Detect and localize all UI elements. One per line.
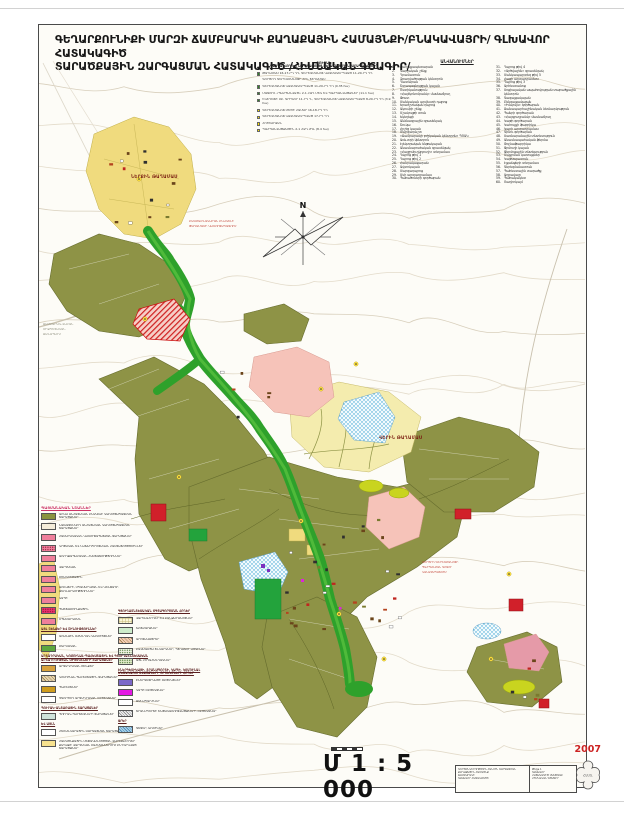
legend-row: ՄՇԱԿՈՒԹԱՅԻՆ [41,576,148,583]
stamp-seal-icon: ՀԱՍՏ. [570,758,606,792]
list-item-label: Ռադիոկայմ [504,181,586,185]
list-item-label: ՄԱՏՈՒՌ «ՊԱՀՊԱՆՎԱԾ» 2-1 ՀՁԴ ՄԵԿ ԵՎ ՊԱՀՊԱՆ… [262,92,373,96]
legend-swatch [41,607,56,614]
map-label-lower-quarter: ՆԵՐՔԻՆ ԹԱՂԱՄԱՍ [131,174,178,179]
legend-swatch [41,555,56,562]
list-item-marker [257,109,260,112]
list-item-number: 30. [392,177,400,181]
legend-row: ԿԱՊԻ ՕԲՅԵԿՏՆԵՐ [118,689,223,696]
legend-swatch [41,740,56,747]
legend-label: ԱՌՈՂՋԱՊԱՀԱԿԱՆ ՀԱՍՏԱՏՈՒԹՅՈՒՆՆԵՐ [59,555,121,559]
legend-label: ՏՐԱՆՍՊՈՐՏԻ ԵՆԹԱԿԱՌՈՒՑՎԱԾՔՆԵՐԻ ՕԲՅԵԿՏՆԵՐ [136,710,216,714]
legend-label: ՊԱՀԵՍՏՆԵՐ [59,686,78,690]
map-label-upper-quarter: ՎԵՐԻՆ ԹԱՂԱՄԱՍ [379,435,423,440]
legend-label: ԱՌԱՆՁԻՆ ՕԺԱՆԴԱԿ ԿԱՌՈՒՅՑՆԵՐ [59,634,112,638]
legend-row: ՃԱՆԱՊԱՐՀՆԵՐ [118,699,223,706]
legend-swatch [118,637,133,644]
legend-swatch [118,627,133,634]
legend-swatch [118,710,133,717]
list-item-label: ՊԱՀՊԱՆՎԱԾՔԱՅԻՆ 2-1 ՀՁԴ ԺԴԼ (8.4 հա) [262,128,328,132]
legend-middle-column: ԳՅՈՒՂԱՏՆՏԵՍԱԿԱՆ ՕԳՏԱԳՈՐԾՄԱՆ ՀՈՂԵՐՎԱՐԵԼԱՀ… [118,607,223,737]
names-list-header: ԱՆՎԱՆՈՒՄՆԵՐ [402,59,512,64]
legend-label: ԱՌԵՎՏՐԻ, ՍՊԱՍԱՐԿՄԱՆ ԵՎ ԿԵՆՑԱՂԻ ՁԵՌՆԱՐԿՈՒ… [59,586,148,593]
list-item: ԳԵՐԵԶՄԱՆՈՑ ՄԵԾԻ ՀԱՄԱՐ 16-18-ՐԴ ԴԴ [257,109,391,113]
title-block: ԳՈՐԾԸՆԿԵՐՈՒԹՅՈՒՆ ՀԱՆՈՒՆ ԶԱՐԳԱՑՄԱՆ ՔԱՂԱՔԱ… [455,765,577,793]
legend-swatch [118,699,133,706]
title-block-line: ՀԻՄՆԱԿԱՆ ԳԾԱԳԻՐ [532,777,574,780]
legend-swatch [41,729,56,736]
legend-label: ՍՊԱՍԱՐԿՄԱՆ [59,618,81,622]
title-block-left: ԳՈՐԾԸՆԿԵՐՈՒԹՅՈՒՆ ՀԱՆՈՒՆ ԶԱՐԳԱՑՄԱՆ ՔԱՂԱՔԱ… [456,766,530,792]
list-item-label: ԳԵՐԵԶՄԱՆՈՑ ԿԱԶՄԱԿԵՐՊՎԱԾ 17-ՐԴ ԴԴ [262,115,328,119]
compass-north-label: N [300,201,307,210]
legend-label: ԱՐՏԱԴՐԱԿԱՆ ՇԵՆՔԵՐ [59,665,94,669]
legend-label: ԱՌԿԱ ԱՆՀԱՏԱԿԱՆ ԲՆԱԿԵԼԻ ԿԱՌՈՒՑԱՊԱՏՄԱՆ ՏԱՐ… [59,513,148,520]
list-item-label: ԵԿԵՂԵՑԻ ՍԲ. ԳՐԻԳՈՐ 11-ՐԴ Դ., ԳԵՐԵԶՄԱՆՈՑ … [262,98,391,106]
legend-label: ՀԱՄԱՅՆՔԱՅԻՆ ՍԵՓԱԿԱՆՈՒԹՅԱՆ ՎԱՐԵԼԱՀՈՂԵՐ ՔԱ… [59,740,148,751]
legend-section-header: ԷՆԵՐԳԵՏԻԿԱՅԻ, ՏՐԱՆՍՊՈՐՏԻ, ԿԱՊԻ, ԿՈՄՈՒՆԱԼ… [118,669,223,677]
list-item-marker [257,99,260,102]
list-item-marker [257,85,260,88]
legend-section-header: ՊԱՅՄԱՆԱԿԱՆ ՆՇԱՆՆԵՐ [41,506,148,510]
legend-swatch [41,713,56,720]
title-block-line: ԳԼԽԱՎՈՐ ՀԱՏԱԿԱԳԻԾ [458,777,527,780]
list-item: ՊԱՀՊԱՆՎԱԾՔԱՅԻՆ 2-1 ՀՁԴ ԺԴԼ (8.4 հա) [257,128,391,132]
legend-row: ՎԱՐՉԱԿԱՆ [41,565,148,572]
legend-label: ԽՈՏՀԱՐՔՆԵՐ [136,627,158,631]
legend-label: ԿԱՊԻ ՕԲՅԵԿՏՆԵՐ [136,689,165,693]
map-label-road-3: ՃԱՆԱՊԱՐՀ [43,332,61,336]
legend-swatch [41,513,56,520]
legend-row: ԱՅԼ ՀՈՂԱՀԱՆԴԱԿՆԵՐ [118,658,223,665]
legend-swatch [41,686,56,693]
legend-swatch [118,648,133,655]
legend-label: ՄՇԱԿՈՒԹԱՅԻՆ [59,576,82,580]
year-label: 2007 [539,744,601,755]
legend-swatch [41,565,56,572]
map-label-cemetery-3: ԿԱՆԱՉԱՊԱՏՈՒՄ [422,570,447,574]
legend-swatch [118,658,133,665]
legend-row: ԱՌՈՂՋԱՊԱՀԱԿԱՆ ՀԱՍՏԱՏՈՒԹՅՈՒՆՆԵՐ [41,555,148,562]
names-column-2: 31.Դպրոց թիվ 432.«Արծվաշեն» գրասենյակ33.… [496,66,586,185]
names-column-1: 1.Քաղաքապետարան2.Վարչական շենք3.Դրամատու… [392,66,496,185]
legend-row: ՀԱՄԱՅՆՔԱՅԻՆ ՍԵՓԱԿԱՆՈՒԹՅԱՆ ՎԱՐԵԼԱՀՈՂԵՐ ՔԱ… [41,740,148,751]
legend-row: ԱՌԿԱ ԱՆՀԱՏԱԿԱՆ ԲՆԱԿԵԼԻ ԿԱՌՈՒՑԱՊԱՏՄԱՆ ՏԱՐ… [41,513,148,520]
legend-row: ԱՐՈՏԱՎԱՅՐԵՐ [118,637,223,644]
legend-row: ԲԱԶՄԱՄՅԱ ՏՆԿԱՐԿՆԵՐ, ՊՏՂԱՏՈՒ ԱՅԳԻՆԵՐ [118,648,223,655]
legend-label: ՎԱՐՉԱԿԱՆ [59,565,76,569]
legend-label: ՎԱՐԵԼԱՀՈՂԵՐ ԵՎ ԲԱՆՋԱՐԱՆՈՑՆԵՐ [136,617,193,621]
legend-row: ՎԱՐԵԼԱՀՈՂԵՐ ԵՎ ԲԱՆՋԱՐԱՆՈՑՆԵՐ [118,617,223,624]
compass-icon: N [263,201,343,265]
list-item: ՀՈՒՇԱՐՁԱՆ [257,122,391,126]
legend-label: ՆԱԽԱՏԵՍՎՈՂ ԱՆՀԱՏԱԿԱՆ ԿԱՌՈՒՑԱՊԱՏՄԱՆ ՏԱՐԱԾ… [59,523,148,530]
legend-row: ԱՌԵՎՏՐԻ, ՍՊԱՍԱՐԿՄԱՆ ԵՎ ԿԵՆՑԱՂԻ ՁԵՌՆԱՐԿՈՒ… [41,586,148,593]
legend-swatch [118,726,133,733]
legend-row: ՀԱՍԱՐԱԿԱԿԱՆ ԿԱՌՈՒՑԱՊԱՏՄԱՆ ՏԱՐԱԾՔՆԵՐ [41,534,148,541]
list-item-label: Պահածոների գործարան [400,177,496,181]
map-label-district-2: ԹԱՂԱՄԱՍԻ ԿԱՌՈՒՑԱՊԱՏՈՒՄ [189,224,237,228]
legend-swatch [41,576,56,583]
protected-list-subtitle: ՊԱՀՊԱՆՎՈՂ ԵՎ ՆՈՐԱԿԱՌՈՒՅՑ ՏԵՂԱՄԱՍԵՐԻ ՆԿԱՐ… [257,65,391,69]
list-item-marker [257,72,260,75]
page-bottom-rule [0,801,624,802]
legend-label: ԿԱՊԻ [59,597,68,601]
scale-block: Մ 1 : 5 000 [323,747,453,803]
legend-label: ՀԵՌԱՆԿԱՐԱՅԻՆ ԶԱՐԳԱՑՄԱՆ ՏԱՐԱԾՔ [59,729,119,733]
legend-swatch [41,534,56,541]
legend-label: ԲԱԶՄԱՄՅԱ ՏՆԿԱՐԿՆԵՐ, ՊՏՂԱՏՈՒ ԱՅԳԻՆԵՐ [136,648,205,652]
legend-row: ԷՆԵՐԳԵՏԻԿԱՅԻ ՕԲՅԵԿՏՆԵՐ [118,679,223,686]
legend-label: ԱՅԼ ՀՈՂԱՀԱՆԴԱԿՆԵՐ [136,658,170,662]
list-item: ԳԵՐԵԶՄԱՆՈՑ ԿԱԶՄԱԿԵՐՊՎԱԾ 17-ՐԴ ԴԴ [257,115,391,119]
list-item: 60.Ռադիոկայմ [496,181,586,185]
map-label-cemetery-1: ԳՈՐԾՈՂ ԳԵՐԵԶՄԱՆՈՑԻ [422,560,458,564]
stamp-seal-text: ՀԱՍՏ. [583,774,593,778]
legend-swatch [41,523,56,530]
list-item-label: ԳԵՐԵԶՄԱՆՈՑ ԿԱԶՄԱԿԵՐՊՎԱԾ 11-20-ՐԴ ԴԴ (0.3… [262,85,349,89]
map-label-district-1: ԲԱԶՄԱԲՆԱԿԱՐԱՆ ԲՆԱԿԵԼԻ [189,219,234,223]
legend-swatch [41,618,56,625]
map-sheet: ԳԵՂԱՐՔՈՒՆԻՔԻ ՄԱՐԶԻ ՃԱՄԲԱՐԱԿԻ ՔԱՂԱՔԱՅԻՆ Հ… [38,24,587,788]
legend-label: ԷՆԵՐԳԵՏԻԿԱՅԻ ՕԲՅԵԿՏՆԵՐ [136,679,181,683]
list-item-label: ԹԱՂԱՄԱՍ 16-17-ՐԴ ԴԴ, ԳԵՐԵԶՄԱՆՈՑ ԿԱԶՄԱԿԵՐ… [262,72,372,76]
legend-row: ՆԱԽԱՏԵՍՎՈՂ ԱՆՀԱՏԱԿԱՆ ԿԱՌՈՒՑԱՊԱՏՄԱՆ ՏԱՐԱԾ… [41,523,148,530]
legend-section-header: ՋՐԵՐ [118,720,223,724]
legend-label: ՊՈՒՐԱԿ-ՊԱՐՏԵԶՆԵՐԻ ՏԱՐԱԾՔՆԵՐ [59,713,114,717]
legend-row: ԿԱՊԻ [41,597,148,604]
legend-swatch [41,586,56,593]
list-item: ԳԵՐԵԶՄԱՆՈՑ ԿԱԶՄԱԿԵՐՊՎԱԾ 11-20-ՐԴ ԴԴ (0.3… [257,85,391,89]
list-item: 30.Պահածոների գործարան [392,177,496,181]
list-item-marker [257,116,260,119]
legend-swatch [118,689,133,696]
names-list: ԱՆՎԱՆՈՒՄՆԵՐ 1.Քաղաքապետարան2.Վարչական շե… [392,59,586,185]
list-item: ԹԱՂԱՄԱՍ 16-17-ՐԴ ԴԴ, ԳԵՐԵԶՄԱՆՈՑ ԿԱԶՄԱԿԵՐ… [257,72,391,76]
page-title-line1: ԳԵՂԱՐՔՈՒՆԻՔԻ ՄԱՐԶԻ ՃԱՄԲԱՐԱԿԻ ՔԱՂԱՔԱՅԻՆ Հ… [55,33,575,60]
map-label-road-1: ՃԱՄԲԱՐԱԿ-ՎԱՀԱՆ [43,322,74,326]
legend-label: ՉԳՈՐԾՈՂ ԱՐՏԱԴՐԱԿԱՆ ՕԲՅԵԿՏՆԵՐ [59,696,116,700]
list-item-label: ԳՈՐԾՈՂ ԳԵՐԵԶՄԱՆՈՑԻ ՀԻՆ ՏԵՂԱՄԱՍ [262,78,325,82]
legend-swatch [41,675,56,682]
legend-label: ԿՐԹԱԿԱՆ ԵՎ ՆԱԽԱԴՊՐՈՑԱԿԱՆ ՀԱՍՏԱՏՈՒԹՅՈՒՆՆԵ… [59,545,143,549]
map-label-road-2: ՄԻՋՊԵՏԱԿԱՆ [43,327,66,331]
list-item-number: 60. [496,181,504,185]
legend-label: ԳԵՏԵՐ, ԱՌՈՒՆԵՐ [136,726,163,730]
legend-row: ԿՐԹԱԿԱՆ ԵՎ ՆԱԽԱԴՊՐՈՑԱԿԱՆ ՀԱՍՏԱՏՈՒԹՅՈՒՆՆԵ… [41,545,148,552]
legend-label: ՊԱՇՏԱՄՈՒՆՔԱՅԻՆ [59,607,89,611]
list-item-marker [257,122,260,125]
list-item-marker [257,129,260,132]
legend-swatch [118,617,133,624]
legend-label: ՄԱՐԶԱԿԱՆ [59,645,76,649]
protected-objects-list: ՑՈՒՑԱԿ ՊԱՀՊԱՆՎՈՂ ԵՎ ՆՈՐԱԿԱՌՈՒՅՑ ՏԵՂԱՄԱՍԵ… [257,61,391,135]
list-item-label: ՀՈՒՇԱՐՁԱՆ [262,122,281,126]
list-item: ԵԿԵՂԵՑԻ ՍԲ. ԳՐԻԳՈՐ 11-ՐԴ Դ., ԳԵՐԵԶՄԱՆՈՑ … [257,98,391,106]
legend-row: ԳԵՏԵՐ, ԱՌՈՒՆԵՐ [118,726,223,733]
legend-swatch [41,645,56,652]
list-item-label: ԳԵՐԵԶՄԱՆՈՑ ՄԵԾԻ ՀԱՄԱՐ 16-18-ՐԴ ԴԴ [262,109,327,113]
list-item: ԳՈՐԾՈՂ ԳԵՐԵԶՄԱՆՈՑԻ ՀԻՆ ՏԵՂԱՄԱՍ [257,78,391,82]
legend-label: ՃԱՆԱՊԱՐՀՆԵՐ [136,699,160,703]
legend-row: ԽՈՏՀԱՐՔՆԵՐ [118,627,223,634]
legend-label: ԱՐՈՏԱՎԱՅՐԵՐ [136,637,159,641]
legend-swatch [41,634,56,641]
legend-row: ՏՐԱՆՍՊՈՐՏԻ ԵՆԹԱԿԱՌՈՒՑՎԱԾՔՆԵՐԻ ՕԲՅԵԿՏՆԵՐ [118,710,223,717]
scale-label: Մ 1 : 5 000 [323,751,453,803]
page-top-rule [0,8,624,9]
legend-section-header: ԳՅՈՒՂԱՏՆՏԵՍԱԿԱՆ ՕԳՏԱԳՈՐԾՄԱՆ ՀՈՂԵՐ [118,610,223,614]
legend-swatch [41,545,56,552]
legend-swatch [41,696,56,703]
legend-swatch [41,665,56,672]
legend-label: ՀԱՍԱՐԱԿԱԿԱՆ ԿԱՌՈՒՑԱՊԱՏՄԱՆ ՏԱՐԱԾՔՆԵՐ [59,534,132,538]
legend-swatch [118,679,133,686]
legend-swatch [41,597,56,604]
legend-label: ԿՈՄՈՒՆԱԼ-ՊԱՀԵՍՏԱՅԻՆ ՏԱՐԱԾՔՆԵՐ [59,675,118,679]
list-item-marker [257,92,260,95]
map-label-cemetery-2: ՊԱՀՊԱՆՄԱՆ ԳՈՏՈՒ [422,565,452,569]
list-item: ՄԱՏՈՒՌ «ՊԱՀՊԱՆՎԱԾ» 2-1 ՀՁԴ ՄԵԿ ԵՎ ՊԱՀՊԱՆ… [257,92,391,96]
